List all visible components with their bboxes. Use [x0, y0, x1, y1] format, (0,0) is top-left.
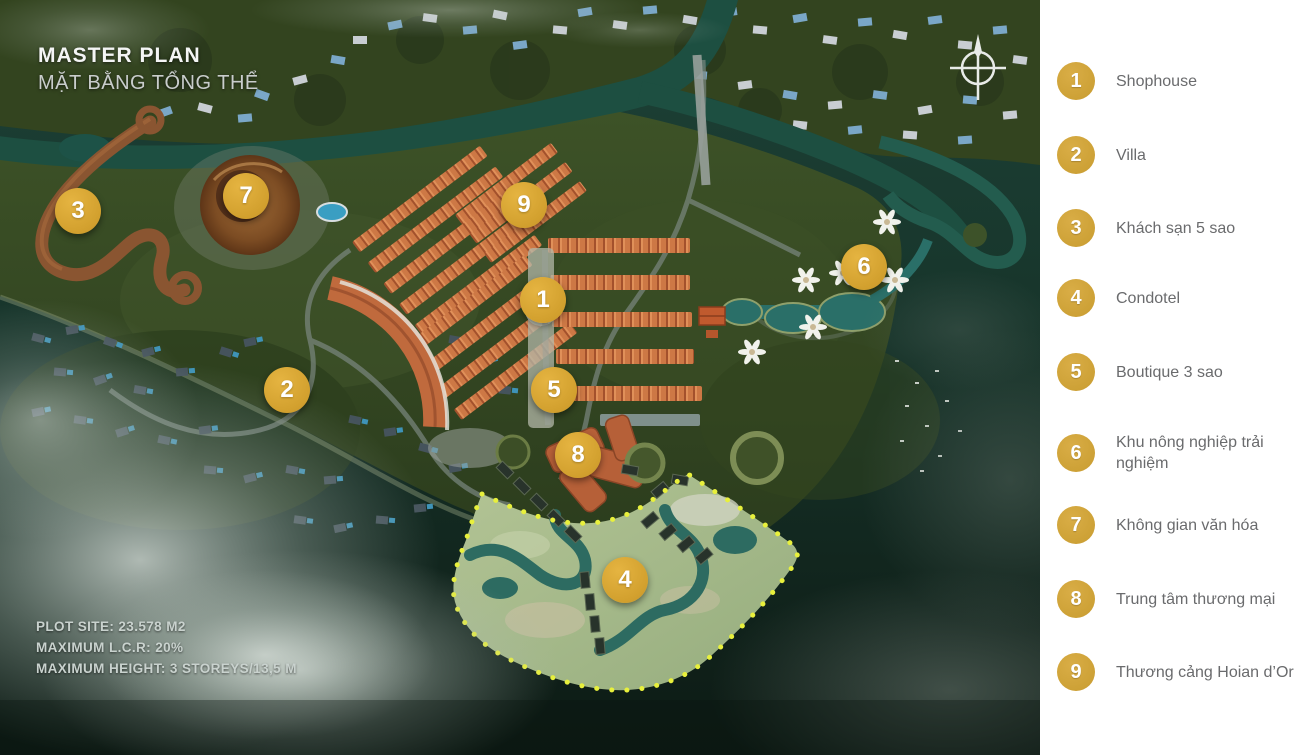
- legend-item-hotel: 3 Khách sạn 5 sao: [1057, 209, 1235, 247]
- map-marker-7-number: 7: [239, 182, 252, 210]
- legend-item-boutique: 5 Boutique 3 sao: [1057, 353, 1223, 391]
- legend-item-mall: 8 Trung tâm thương mại: [1057, 580, 1275, 618]
- map-marker-3-number: 3: [71, 197, 84, 225]
- legend-item-villa: 2 Villa: [1057, 136, 1146, 174]
- plot-lcr: MAXIMUM L.C.R: 20%: [36, 637, 297, 658]
- legend-badge-3: 3: [1057, 209, 1095, 247]
- map-marker-7: 7: [223, 173, 269, 219]
- legend-badge-4: 4: [1057, 279, 1095, 317]
- legend-item-culture: 7 Không gian văn hóa: [1057, 506, 1258, 544]
- plot-height: MAXIMUM HEIGHT: 3 STOREYS/13,5 M: [36, 658, 297, 679]
- legend-item-shophouse: 1 Shophouse: [1057, 62, 1197, 100]
- map-marker-4-number: 4: [618, 566, 631, 594]
- map-marker-1: 1: [520, 277, 566, 323]
- legend-badge-6: 6: [1057, 434, 1095, 472]
- map-title-block: MASTER PLAN MẶT BẰNG TỔNG THỂ: [38, 44, 259, 95]
- legend-label-hotel: Khách sạn 5 sao: [1116, 218, 1235, 239]
- legend-panel: 1 Shophouse 2 Villa 3 Khách sạn 5 sao 4 …: [1040, 0, 1300, 755]
- masterplan-aerial-image: MASTER PLAN MẶT BẰNG TỔNG THỂ PLOT SITE:…: [0, 0, 1040, 755]
- page-title: MASTER PLAN: [38, 44, 259, 68]
- masterplan-slide: MASTER PLAN MẶT BẰNG TỔNG THỂ PLOT SITE:…: [0, 0, 1300, 755]
- legend-label-shophouse: Shophouse: [1116, 71, 1197, 92]
- map-marker-4: 4: [602, 557, 648, 603]
- legend-badge-7: 7: [1057, 506, 1095, 544]
- legend-label-agriculture: Khu nông nghiệp trải nghiệm: [1116, 432, 1296, 474]
- legend-item-agriculture: 6 Khu nông nghiệp trải nghiệm: [1057, 432, 1296, 474]
- map-marker-2-number: 2: [280, 376, 293, 404]
- legend-label-villa: Villa: [1116, 145, 1146, 166]
- map-marker-5: 5: [531, 367, 577, 413]
- map-marker-1-number: 1: [536, 286, 549, 314]
- map-marker-9-number: 9: [517, 191, 530, 219]
- plot-site: PLOT SITE: 23.578 M2: [36, 616, 297, 637]
- legend-badge-5: 5: [1057, 353, 1095, 391]
- legend-item-port: 9 Thương cảng Hoian d’Or: [1057, 653, 1294, 691]
- plot-info: PLOT SITE: 23.578 M2 MAXIMUM L.C.R: 20% …: [36, 616, 297, 679]
- map-marker-2: 2: [264, 367, 310, 413]
- legend-badge-2: 2: [1057, 136, 1095, 174]
- legend-label-mall: Trung tâm thương mại: [1116, 589, 1275, 610]
- page-subtitle: MẶT BẰNG TỔNG THỂ: [38, 72, 259, 95]
- map-marker-8: 8: [555, 432, 601, 478]
- map-marker-6-number: 6: [857, 253, 870, 281]
- map-marker-6: 6: [841, 244, 887, 290]
- legend-label-culture: Không gian văn hóa: [1116, 515, 1258, 536]
- legend-label-condotel: Condotel: [1116, 288, 1180, 309]
- legend-label-port: Thương cảng Hoian d’Or: [1116, 662, 1294, 683]
- map-marker-8-number: 8: [571, 441, 584, 469]
- legend-label-boutique: Boutique 3 sao: [1116, 362, 1223, 383]
- map-marker-5-number: 5: [547, 376, 560, 404]
- legend-item-condotel: 4 Condotel: [1057, 279, 1180, 317]
- map-marker-9: 9: [501, 182, 547, 228]
- legend-badge-9: 9: [1057, 653, 1095, 691]
- legend-badge-8: 8: [1057, 580, 1095, 618]
- legend-badge-1: 1: [1057, 62, 1095, 100]
- map-marker-3: 3: [55, 188, 101, 234]
